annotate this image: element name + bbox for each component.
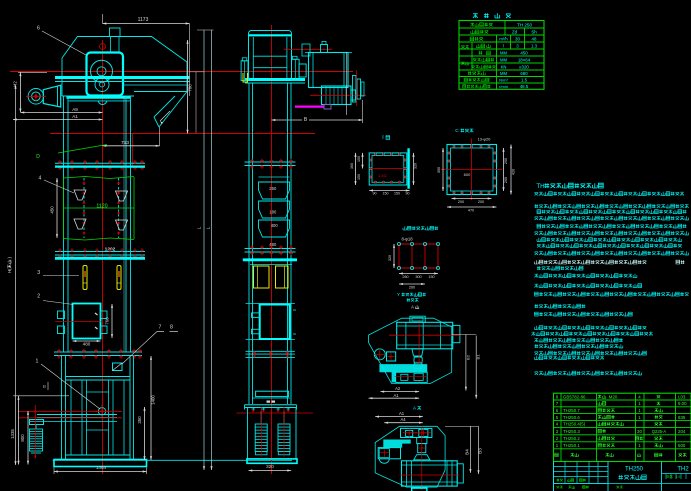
svg-text:800: 800 [20,434,25,442]
svg-text:Zd: Zd [512,30,518,35]
svg-text:B1: B1 [476,354,481,360]
svg-text:1173: 1173 [138,17,149,23]
svg-text:680: 680 [520,71,528,76]
svg-text:320: 320 [266,464,274,469]
svg-text:A4: A4 [400,417,406,422]
svg-text:200: 200 [504,177,508,183]
svg-text:250: 250 [269,186,277,191]
svg-text:150: 150 [428,275,434,279]
svg-text:150: 150 [394,192,400,196]
svg-text:150: 150 [357,174,361,180]
svg-text:470: 470 [468,209,474,213]
svg-text:A1: A1 [399,411,405,416]
svg-text:30: 30 [515,37,520,42]
svg-text:6: 6 [37,26,40,32]
svg-text:600: 600 [464,172,471,177]
svg-text:1-M2: 1-M2 [378,174,387,178]
svg-text:GB5782-86: GB5782-86 [563,394,586,399]
svg-text:9.00: 9.00 [678,401,687,406]
svg-text:Y: Y [397,292,400,297]
svg-text:TH: TH [536,183,544,190]
svg-text:A2: A2 [395,386,401,391]
svg-text:B2: B2 [465,354,470,360]
svg-text:L: L [197,226,202,229]
svg-text:A9: A9 [72,107,78,112]
svg-text:H(: H( [7,268,12,273]
svg-text:180: 180 [269,210,277,215]
svg-text:835: 835 [678,415,686,420]
svg-text:H2: H2 [13,81,18,87]
svg-text:TH250: TH250 [625,467,644,473]
svg-text:Q235-A: Q235-A [652,429,667,434]
svg-text:48: 48 [532,37,537,42]
svg-text:TH 250: TH 250 [517,22,533,27]
svg-text:TH250.2: TH250.2 [563,436,580,441]
svg-text:713: 713 [121,140,129,146]
svg-text:260: 260 [409,286,415,290]
svg-text:TH250.6: TH250.6 [563,415,580,420]
svg-text:C: C [455,128,459,134]
svg-text:8-φ18: 8-φ18 [401,237,413,242]
svg-text:4: 4 [39,176,42,182]
svg-text:3: 3 [37,270,40,276]
svg-text:N/m³: N/m³ [499,77,508,82]
svg-text:150: 150 [357,156,361,162]
svg-text:200: 200 [504,158,508,164]
svg-text:TH250.3: TH250.3 [563,429,580,434]
svg-text:1120: 1120 [96,203,107,209]
svg-text:360: 360 [350,163,354,169]
svg-text:780: 780 [188,84,193,92]
svg-text:B3: B3 [478,448,483,454]
svg-text:1:9: 1:9 [676,475,681,479]
svg-text:TH250.1: TH250.1 [563,443,580,448]
svg-text:480: 480 [269,242,277,247]
svg-text:MM: MM [500,57,507,62]
svg-text:A1: A1 [393,393,399,398]
svg-text:18×64: 18×64 [518,57,531,62]
svg-text:1: 1 [36,359,39,365]
svg-text:1464: 1464 [96,465,107,470]
svg-text:A: A [411,305,414,310]
svg-text:1.5: 1.5 [521,77,528,82]
svg-text:TH250.7: TH250.7 [563,408,580,413]
svg-text:150: 150 [383,192,389,196]
svg-text:1400: 1400 [151,395,156,405]
svg-text:390: 390 [437,167,441,173]
svg-text:B4: B4 [465,449,470,455]
svg-text:MM: MM [500,51,507,56]
svg-text:I: I [382,135,383,141]
svg-text:7: 7 [159,325,162,331]
svg-text:M20: M20 [609,394,618,399]
svg-text:480: 480 [83,342,91,347]
svg-text:260: 260 [402,275,408,279]
svg-text:200: 200 [478,200,484,204]
svg-text:r/min: r/min [499,84,508,89]
svg-text:L03: L03 [678,394,686,399]
svg-text:350: 350 [137,416,142,424]
svg-text:D: D [36,154,40,160]
svg-text:760: 760 [105,317,110,325]
svg-text:l: l [503,44,504,49]
svg-text:450: 450 [50,206,55,214]
svg-text:30: 30 [637,429,642,434]
svg-text:1335: 1335 [10,429,15,439]
svg-text:320: 320 [388,255,392,261]
svg-text:450: 450 [520,51,528,56]
svg-text:MM: MM [500,71,507,76]
svg-text:TH250.4(5): TH250.4(5) [563,422,586,427]
svg-text:13-φ20: 13-φ20 [478,137,492,142]
svg-text:A: A [413,406,416,411]
svg-text:TH2: TH2 [677,467,689,473]
svg-text:420: 420 [512,169,516,175]
svg-text:8: 8 [170,325,173,331]
svg-text:KN: KN [501,64,507,69]
svg-text:300: 300 [415,275,421,279]
svg-text:1.3: 1.3 [531,44,538,49]
svg-text:48.5: 48.5 [520,84,529,89]
svg-text:L: L [206,226,211,229]
svg-text:2: 2 [37,294,40,300]
svg-text:Sh: Sh [531,30,537,35]
svg-text:320: 320 [414,163,418,169]
svg-text:II: II [43,384,46,390]
svg-text:400: 400 [271,223,279,228]
svg-text:204: 204 [678,429,686,434]
svg-text:90: 90 [406,192,410,196]
svg-text:90: 90 [373,192,377,196]
svg-text:A1: A1 [72,114,78,119]
svg-text:600: 600 [678,443,686,448]
svg-text:200: 200 [458,200,464,204]
svg-text:≥320: ≥320 [519,64,529,69]
svg-text:m³/h: m³/h [499,37,508,42]
